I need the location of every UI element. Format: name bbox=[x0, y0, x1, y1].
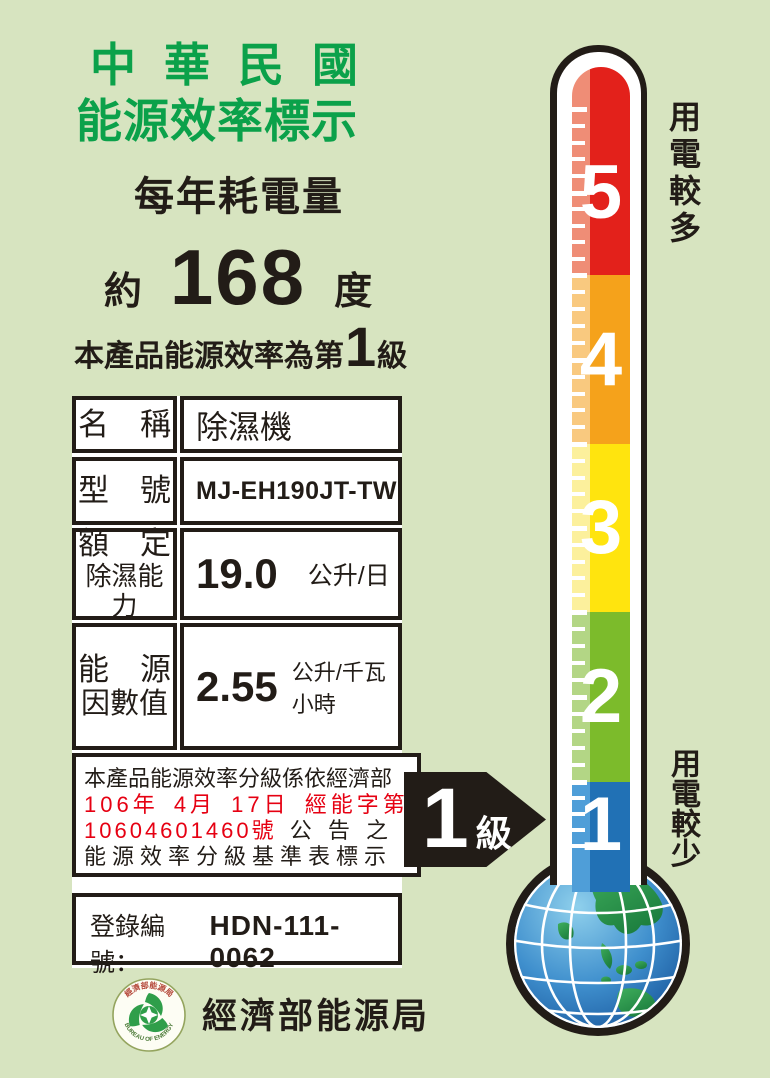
approx-prefix: 約 bbox=[104, 260, 142, 315]
note-line2: 106年 4月 17日 經能字第 bbox=[84, 792, 409, 818]
scale-major-tick bbox=[562, 273, 587, 278]
scale-minor-tick bbox=[572, 459, 585, 463]
efficiency-scale-thermometer: 54321 bbox=[550, 45, 647, 885]
model-label: 型 號 bbox=[72, 457, 177, 525]
table-row: 本產品能源效率分級係依經濟部 106年 4月 17日 經能字第 10604601… bbox=[72, 753, 402, 877]
scale-minor-tick bbox=[572, 124, 585, 128]
table-row: 型 號 MJ-EH190JT-TW bbox=[72, 457, 402, 525]
spec-table: 名 稱 除濕機 型 號 MJ-EH190JT-TW 額 定 除濕能力 19.0 … bbox=[72, 396, 402, 968]
scale-minor-tick bbox=[572, 763, 585, 767]
scale-grade-number-3: 3 bbox=[572, 490, 630, 566]
scale-minor-tick bbox=[572, 257, 585, 261]
registration-row: 登錄編號： HDN-111-0062 bbox=[72, 893, 402, 965]
scale-minor-tick bbox=[572, 746, 585, 750]
scale-minor-tick bbox=[572, 141, 585, 145]
capacity-value: 19.0 公升/日 bbox=[180, 528, 402, 620]
scale-minor-tick bbox=[572, 593, 585, 597]
scale-minor-tick bbox=[572, 476, 585, 480]
table-row: 能 源 因數值 2.55 公升/千瓦小時 bbox=[72, 623, 402, 750]
energy-factor-value: 2.55 公升/千瓦小時 bbox=[180, 623, 402, 750]
label-title-line1: 中華民國 bbox=[90, 40, 386, 91]
bureau-of-energy-seal-icon: 經濟部能源局 BUREAU OF ENERGY bbox=[111, 977, 187, 1053]
table-row: 額 定 除濕能力 19.0 公升/日 bbox=[72, 528, 402, 620]
annual-kwh-value: 168 bbox=[170, 232, 306, 323]
annual-consumption-value: 約 168 度 bbox=[72, 232, 404, 323]
scale-minor-tick bbox=[572, 240, 585, 244]
scale-major-tick bbox=[562, 610, 587, 615]
name-value: 除濕機 bbox=[180, 396, 402, 453]
registration-label: 登錄編號： bbox=[90, 907, 209, 979]
more-power-label: 用電較多 bbox=[660, 100, 706, 248]
legal-note: 本產品能源效率分級係依經濟部 106年 4月 17日 經能字第 10604601… bbox=[72, 753, 421, 877]
capacity-label: 額 定 除濕能力 bbox=[72, 528, 177, 620]
name-label: 名 稱 bbox=[72, 396, 177, 453]
table-row: 登錄編號： HDN-111-0062 bbox=[72, 893, 402, 965]
energy-efficiency-label: 中華民國 能源效率標示 每年耗電量 約 168 度 本產品能源效率為第 1 級 … bbox=[0, 0, 770, 1078]
grade-sentence: 本產品能源效率為第 1 級 bbox=[74, 314, 407, 379]
model-value: MJ-EH190JT-TW bbox=[180, 457, 402, 525]
scale-major-tick bbox=[562, 107, 587, 112]
grade-sentence-prefix: 本產品能源效率為第 bbox=[74, 331, 344, 375]
grade-suffix: 級 bbox=[377, 331, 407, 375]
scale-minor-tick bbox=[572, 627, 585, 631]
scale-minor-tick bbox=[572, 644, 585, 648]
scale-grade-number-1: 1 bbox=[572, 787, 630, 863]
registration-number: HDN-111-0062 bbox=[209, 910, 398, 974]
kwh-unit: 度 bbox=[334, 260, 372, 315]
note-line4: 能源效率分級基準表標示 bbox=[84, 844, 409, 870]
table-row: 名 稱 除濕機 bbox=[72, 396, 402, 453]
scale-major-tick bbox=[562, 442, 587, 447]
scale-minor-tick bbox=[572, 576, 585, 580]
scale-grade-number-4: 4 bbox=[572, 322, 630, 398]
scale-segments: 54321 bbox=[572, 67, 630, 885]
scale-minor-tick bbox=[572, 307, 585, 311]
scale-grade-number-5: 5 bbox=[572, 155, 630, 231]
arrow-grade-suffix: 級 bbox=[476, 816, 512, 852]
scale-grade-number-2: 2 bbox=[572, 659, 630, 735]
scale-minor-tick bbox=[572, 408, 585, 412]
agency-name: 經濟部能源局 bbox=[202, 988, 430, 1039]
less-power-label: 用電較少 bbox=[660, 748, 704, 868]
note-line3: 10604601460號 公 告 之 bbox=[84, 818, 409, 844]
scale-minor-tick bbox=[572, 425, 585, 429]
scale-minor-tick bbox=[572, 290, 585, 294]
energy-factor-label: 能 源 因數值 bbox=[72, 623, 177, 750]
annual-consumption-heading: 每年耗電量 bbox=[134, 164, 344, 222]
grade-value: 1 bbox=[345, 314, 376, 379]
label-title-line2: 能源效率標示 bbox=[76, 96, 358, 147]
arrow-grade-value: 1 bbox=[422, 786, 469, 852]
note-line1: 本產品能源效率分級係依經濟部 bbox=[84, 766, 409, 792]
